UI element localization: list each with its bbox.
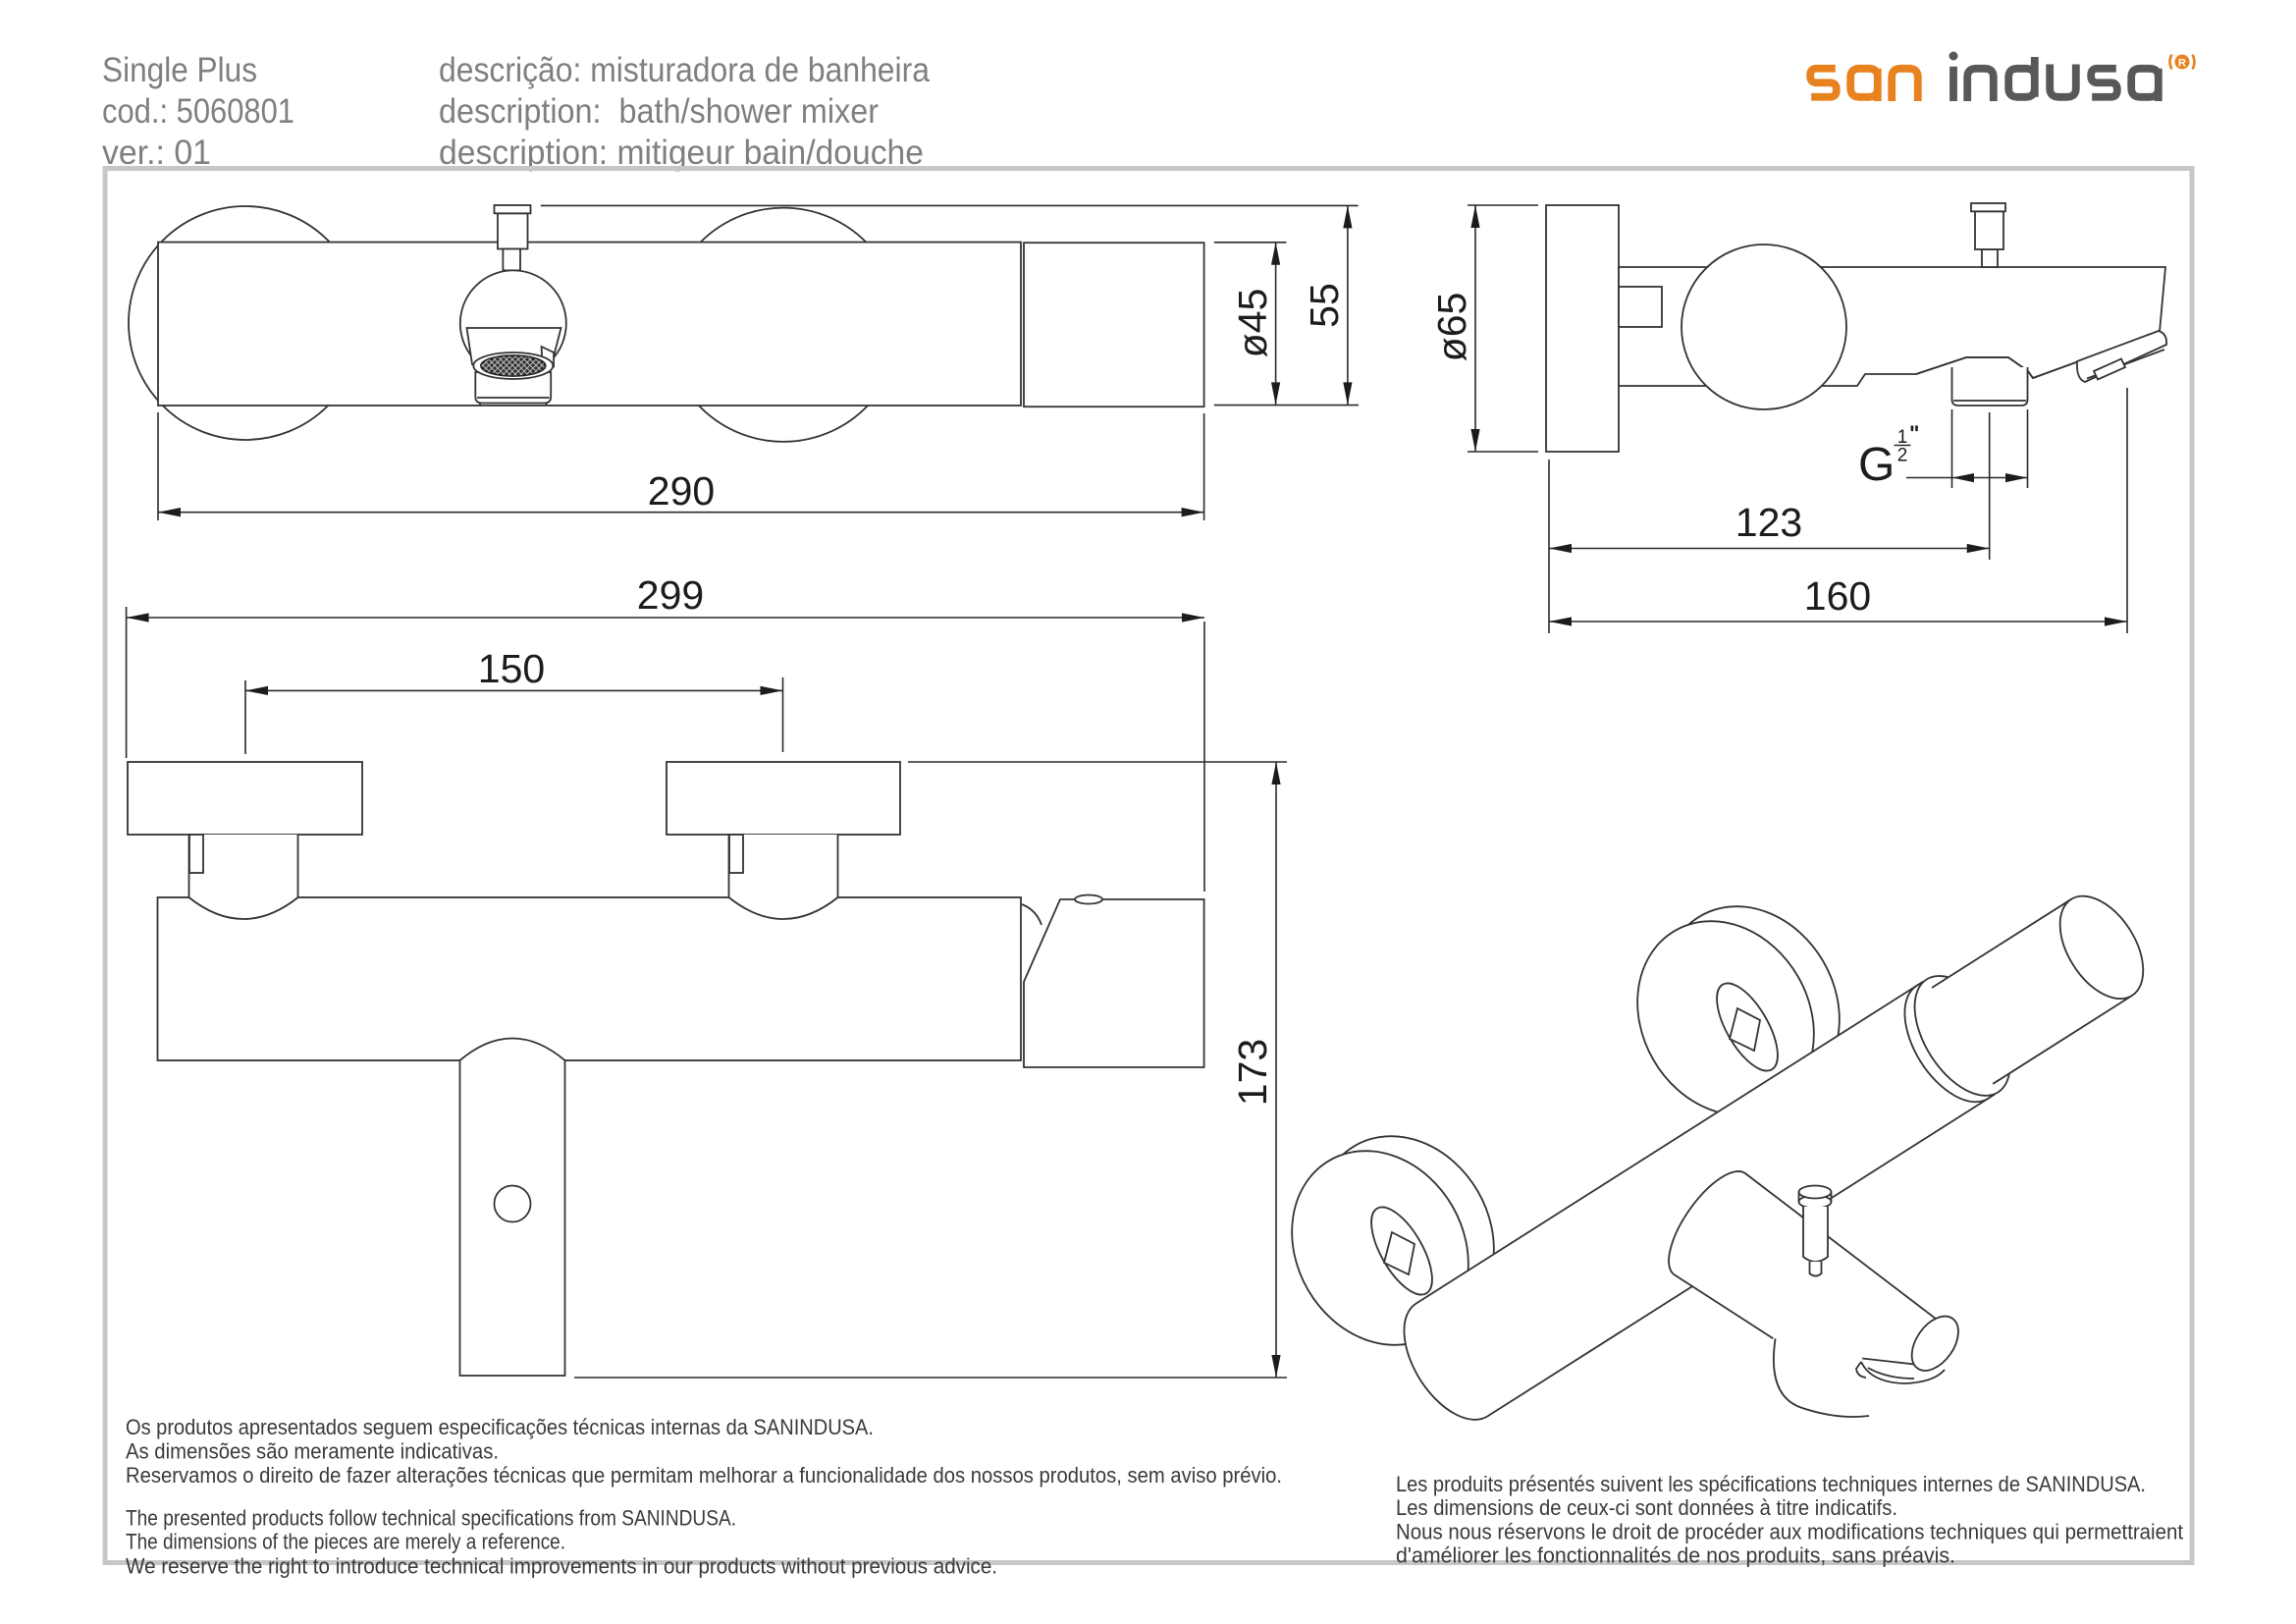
svg-text:Les dimensions de ceux-ci sont: Les dimensions de ceux-ci sont données à…	[1396, 1495, 1897, 1520]
svg-text:d'améliorer les fonctionnalité: d'améliorer les fonctionnalités de nos p…	[1396, 1543, 1955, 1568]
svg-text:173: 173	[1230, 1039, 1275, 1106]
svg-text:Reservamos o direito de fazer: Reservamos o direito de fazer alterações…	[126, 1463, 1282, 1488]
svg-text:The presented products follow: The presented products follow technical …	[126, 1505, 736, 1530]
svg-text:160: 160	[1804, 573, 1871, 619]
svg-text:Os produtos apresentados segue: Os produtos apresentados seguem especifi…	[126, 1415, 874, 1439]
svg-text:55: 55	[1302, 283, 1347, 328]
svg-text:290: 290	[648, 468, 715, 514]
svg-text:2: 2	[1897, 446, 1908, 466]
svg-text:We reserve the right to introd: We reserve the right to introduce techni…	[126, 1553, 997, 1578]
svg-text:Nous nous réservons le droit d: Nous nous réservons le droit de procéder…	[1396, 1520, 2184, 1544]
svg-text:The dimensions of the pieces a: The dimensions of the pieces are merely …	[126, 1529, 565, 1553]
svg-text:150: 150	[478, 646, 545, 691]
svg-text:": "	[1909, 421, 1919, 446]
svg-text:G: G	[1858, 439, 1895, 491]
svg-text:ø45: ø45	[1230, 289, 1275, 358]
svg-text:123: 123	[1735, 500, 1802, 545]
svg-text:ø65: ø65	[1429, 293, 1474, 362]
svg-text:R: R	[2178, 58, 2186, 70]
svg-text:299: 299	[637, 572, 704, 618]
svg-text:Single Plus: Single Plus	[102, 51, 257, 89]
svg-text:Les produits présentés suivent: Les produits présentés suivent les spéci…	[1396, 1472, 2146, 1496]
svg-text:cod.: 5060801: cod.: 5060801	[102, 92, 294, 131]
svg-text:As dimensões são meramente ind: As dimensões são meramente indicativas.	[126, 1439, 499, 1464]
svg-text:description: bath/shower mixe: description: bath/shower mixer	[439, 92, 879, 131]
svg-text:descrição: misturadora de banh: descrição: misturadora de banheira	[439, 51, 930, 89]
